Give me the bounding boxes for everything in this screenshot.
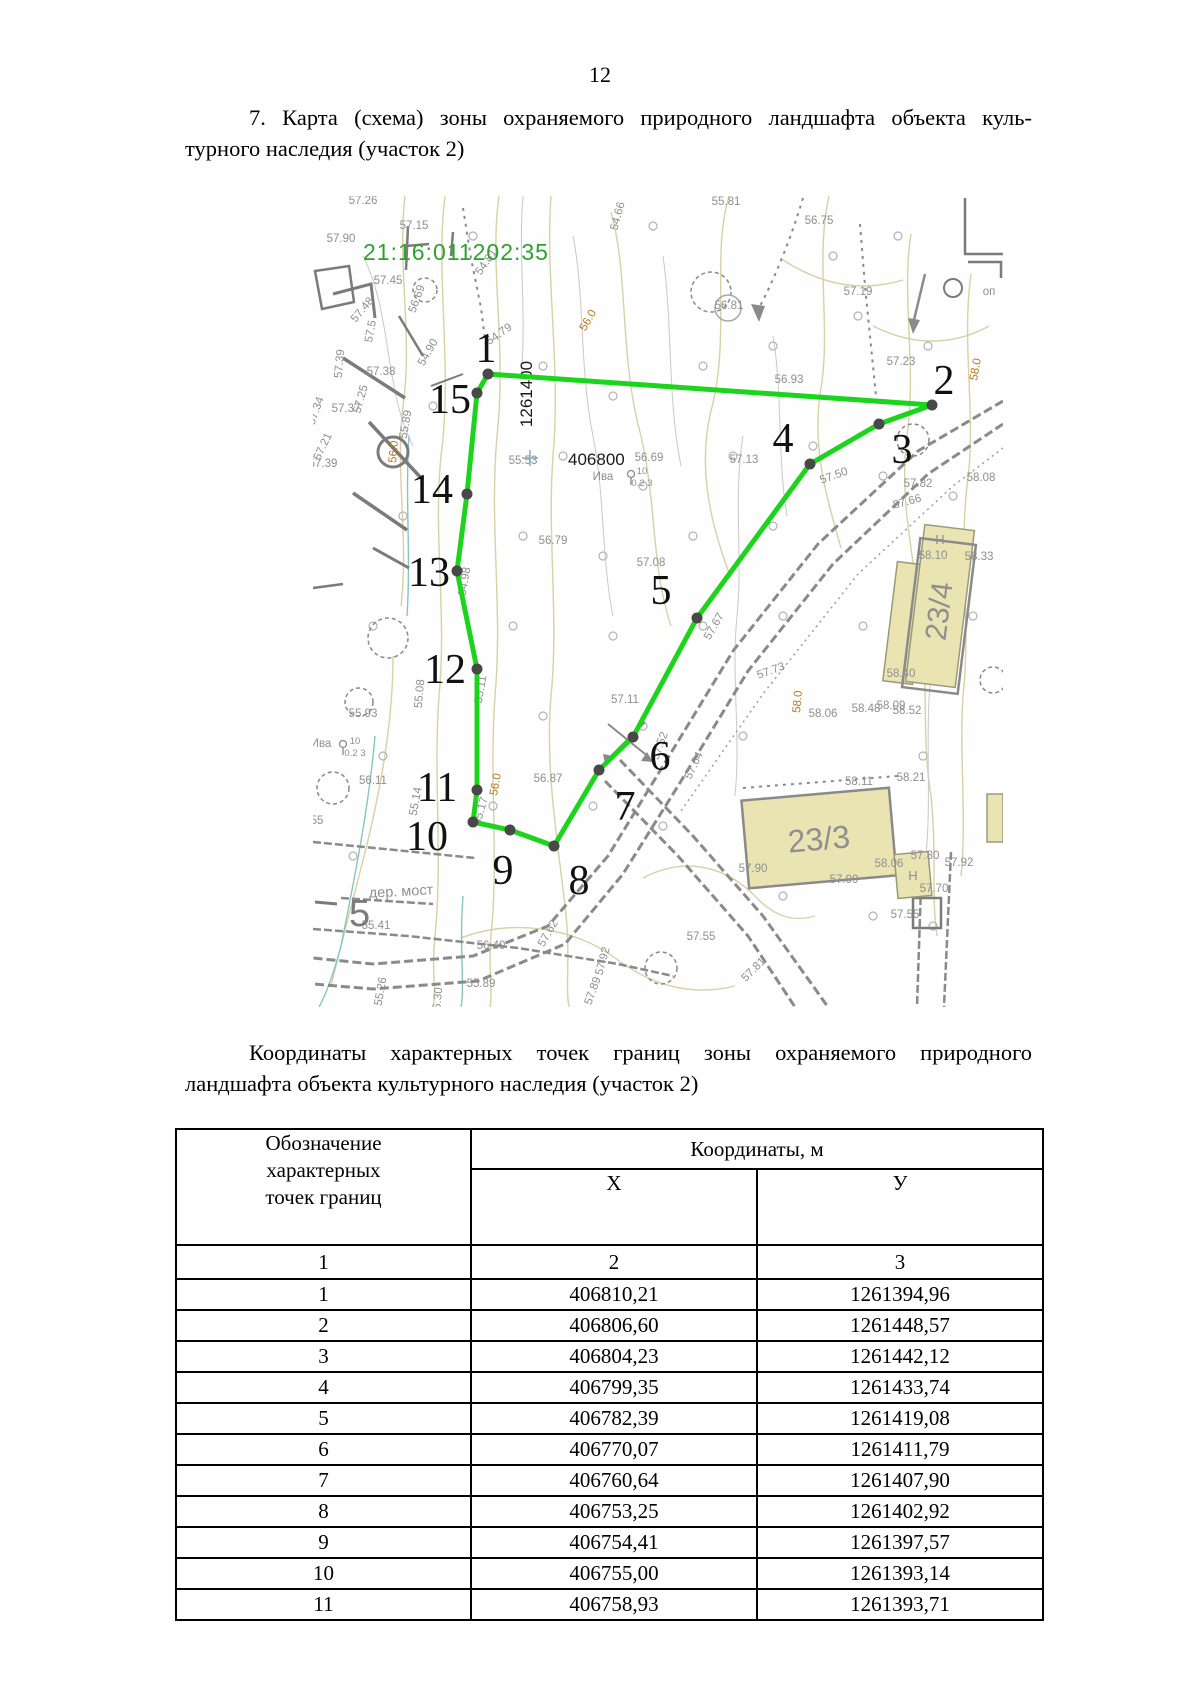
svg-text:14: 14 [411,467,453,513]
svg-text:56.0: 56.0 [488,772,504,796]
index-cell: 1 [176,1245,471,1279]
svg-text:56.69: 56.69 [635,452,664,464]
svg-text:58.40: 58.40 [887,668,916,680]
svg-text:57.67: 57.67 [702,611,727,642]
svg-text:15: 15 [429,377,471,423]
svg-text:58.33: 58.33 [965,551,994,563]
coordinates-table: Обозначение характерных точек границ Коо… [175,1128,1044,1621]
table-row: 1406810,211261394,96 [176,1279,1043,1310]
svg-text:6: 6 [650,734,671,780]
svg-text:5: 5 [349,893,370,935]
svg-text:0.2 3: 0.2 3 [631,478,652,489]
svg-text:57.55: 57.55 [891,909,920,921]
col-header-coordinates: Координаты, м [471,1129,1043,1169]
svg-text:5: 5 [651,568,672,614]
svg-text:56.93: 56.93 [775,374,804,386]
table-cell: 8 [176,1496,471,1527]
svg-text:10: 10 [406,814,448,860]
svg-text:23/3: 23/3 [786,818,851,859]
svg-text:57.62: 57.62 [536,918,561,949]
table-row: 11406758,931261393,71 [176,1589,1043,1620]
svg-text:57.92: 57.92 [945,857,974,869]
svg-text:56.81: 56.81 [715,300,744,312]
table-cell: 1261394,96 [757,1279,1043,1310]
table-cell: 11 [176,1589,471,1620]
svg-text:57.92: 57.92 [594,946,613,977]
svg-text:57.82: 57.82 [904,478,933,490]
table-row: 5406782,391261419,08 [176,1403,1043,1434]
table-row: 3406804,231261442,12 [176,1341,1043,1372]
svg-text:Ива: Ива [313,738,332,750]
table-cell: 406754,41 [471,1527,757,1558]
svg-text:9: 9 [493,848,514,894]
svg-text:56.40: 56.40 [477,940,506,952]
svg-text:54.66: 54.66 [609,201,628,232]
svg-text:55.26: 55.26 [373,976,390,1006]
svg-text:57.90: 57.90 [739,863,768,875]
table-cell: 1261433,74 [757,1372,1043,1403]
svg-text:57.13: 57.13 [730,454,759,466]
table-cell: 4 [176,1372,471,1403]
svg-text:58.48: 58.48 [852,703,881,715]
svg-text:55.30: 55.30 [431,987,445,1007]
svg-text:2: 2 [934,358,955,404]
table-cell: 406753,25 [471,1496,757,1527]
table-cell: 6 [176,1434,471,1465]
svg-text:13: 13 [408,550,450,596]
table-cell: 2 [176,1310,471,1341]
table-cell: 3 [176,1341,471,1372]
svg-text:56.11: 56.11 [359,775,387,787]
svg-text:58.06: 58.06 [809,708,838,720]
svg-text:12: 12 [424,647,466,693]
table-cell: 406804,23 [471,1341,757,1372]
table-cell: 406770,07 [471,1434,757,1465]
table-cell: 1261411,79 [757,1434,1043,1465]
svg-text:8: 8 [569,858,590,904]
table-cell: 406782,39 [471,1403,757,1434]
svg-text:58.21: 58.21 [897,772,926,784]
svg-text:Ива: Ива [593,471,614,483]
svg-text:57.39: 57.39 [333,349,347,379]
svg-text:56.75: 56.75 [805,215,834,227]
table-cell: 1261448,57 [757,1310,1043,1341]
svg-text:57.15: 57.15 [400,220,429,232]
table-row: 10406755,001261393,14 [176,1558,1043,1589]
table-cell: 406806,60 [471,1310,757,1341]
svg-text:57.80: 57.80 [911,850,940,862]
table-cell: 1261402,92 [757,1496,1043,1527]
svg-text:406800: 406800 [568,450,625,469]
svg-text:3: 3 [892,427,913,473]
table-cell: 406758,93 [471,1589,757,1620]
heading-line1: 7. Карта (схема) зоны охраняемого природ… [185,102,1032,133]
svg-text:57.45: 57.45 [374,275,403,287]
svg-text:57.5: 57.5 [363,319,379,343]
svg-text:0.2 3: 0.2 3 [344,748,365,759]
table-cell: 7 [176,1465,471,1496]
table-cell: 1261397,57 [757,1527,1043,1558]
table-cell: 406755,00 [471,1558,757,1589]
table-cell: 9 [176,1527,471,1558]
svg-text:57.11: 57.11 [611,694,639,706]
svg-text:56.69: 56.69 [407,283,428,314]
table-cell: 1261442,12 [757,1341,1043,1372]
table-row: 9406754,411261397,57 [176,1527,1043,1558]
table-cell: 1261393,14 [757,1558,1043,1589]
svg-text:58.11: 58.11 [845,776,873,788]
document-page: { "page": { "number": "12" }, "heading":… [0,0,1200,1697]
svg-text:H: H [908,868,917,883]
table-cell: 406799,35 [471,1372,757,1403]
svg-text:57.50: 57.50 [818,466,849,487]
table-cell: 406760,64 [471,1465,757,1496]
svg-text:57.73: 57.73 [755,661,786,682]
caption-line1: Координаты характерных точек границ зоны… [185,1037,1032,1068]
table-cell: 1 [176,1279,471,1310]
svg-text:58.0: 58.0 [791,690,805,713]
svg-text:58.06: 58.06 [875,858,904,870]
svg-text:57.99: 57.99 [830,874,859,886]
svg-text:56.79: 56.79 [539,535,568,547]
svg-text:56.0: 56.0 [387,440,401,463]
svg-text:1261400: 1261400 [517,361,536,427]
svg-text:58.0: 58.0 [968,357,984,381]
svg-text:21:16:011202:35: 21:16:011202:35 [363,239,549,265]
section-heading: 7. Карта (схема) зоны охраняемого природ… [185,102,1032,164]
svg-text:57.70: 57.70 [920,883,949,895]
table-cell: 1261393,71 [757,1589,1043,1620]
table-cell: 5 [176,1403,471,1434]
table-row: 4406799,351261433,74 [176,1372,1043,1403]
svg-text:4: 4 [773,416,794,462]
svg-text:56.87: 56.87 [534,773,563,785]
svg-text:57.66: 57.66 [892,493,923,512]
page-number: 12 [0,62,1200,88]
svg-text:57.90: 57.90 [327,233,356,245]
svg-text:дер. мост: дер. мост [368,882,434,901]
svg-text:23/4: 23/4 [920,580,960,642]
svg-text:57.26: 57.26 [349,196,378,207]
svg-text:57.81: 57.81 [739,955,768,984]
column-index-row: 123 [176,1245,1043,1279]
svg-text:57.39: 57.39 [313,458,337,470]
svg-text:57.37: 57.37 [332,403,361,415]
table-cell: 10 [176,1558,471,1589]
caption-line2: ландшафта объекта культурного наследия (… [185,1068,1032,1099]
svg-text:55: 55 [313,815,323,827]
svg-text:57.23: 57.23 [887,356,916,368]
table-caption: Координаты характерных точек границ зоны… [185,1037,1032,1099]
svg-text:57.64: 57.64 [683,750,706,782]
index-cell: 3 [757,1245,1043,1279]
index-cell: 2 [471,1245,757,1279]
svg-text:58.52: 58.52 [893,705,922,717]
svg-text:57.89: 57.89 [583,975,604,1006]
svg-text:55.93: 55.93 [349,708,378,720]
table-cell: 1261419,08 [757,1403,1043,1434]
table-row: 6406770,071261411,79 [176,1434,1043,1465]
svg-text:7: 7 [615,784,636,830]
svg-text:11: 11 [417,765,457,811]
col-header-y: У [757,1169,1043,1245]
svg-text:58.10: 58.10 [919,550,948,562]
svg-text:57.38: 57.38 [367,366,396,378]
svg-text:10: 10 [637,466,648,477]
heading-line2: турного наследия (участок 2) [185,133,1032,164]
table-row: 7406760,641261407,90 [176,1465,1043,1496]
table-cell: 406810,21 [471,1279,757,1310]
col-header-designation: Обозначение характерных точек границ [176,1129,471,1245]
svg-text:55.89: 55.89 [467,978,496,990]
table-row: 8406753,251261402,92 [176,1496,1043,1527]
svg-text:55.81: 55.81 [712,196,741,208]
svg-text:57.19: 57.19 [844,286,873,298]
svg-text:58.08: 58.08 [967,472,996,484]
svg-text:57.34: 57.34 [313,395,327,427]
svg-text:1: 1 [476,326,497,372]
svg-text:H: H [935,532,944,547]
table-cell: 1261407,90 [757,1465,1043,1496]
svg-text:оп: оп [983,286,996,298]
svg-text:55.53: 55.53 [509,455,538,467]
table-row: 2406806,601261448,57 [176,1310,1043,1341]
map-schema: 23/423/357.2657.1557.9057.4556.6954.8154… [313,196,1003,1007]
map-svg: 23/423/357.2657.1557.9057.4556.6954.8154… [313,196,1003,1007]
col-header-x: Х [471,1169,757,1245]
svg-text:57.55: 57.55 [687,931,716,943]
svg-text:10: 10 [350,736,361,747]
